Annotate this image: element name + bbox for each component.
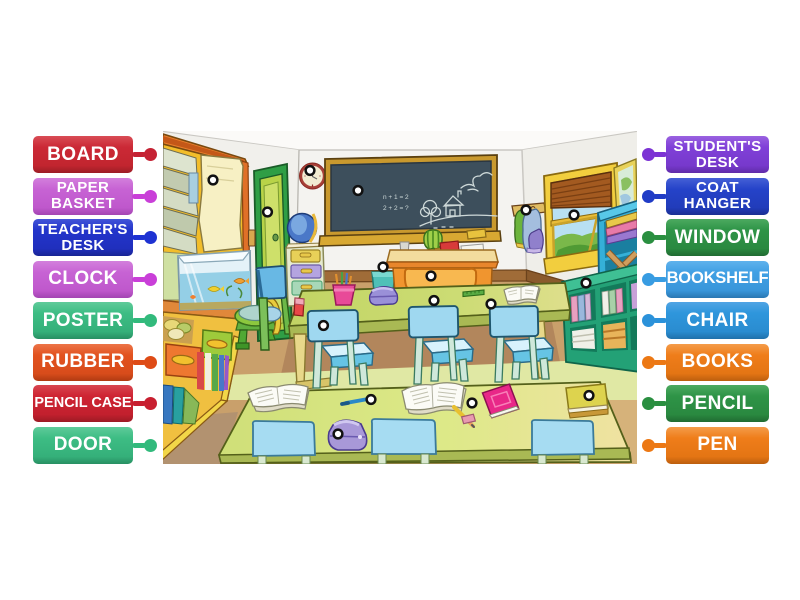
svg-text:n + 1 = 2: n + 1 = 2: [383, 194, 409, 201]
svg-text:2 + 2 = ?: 2 + 2 = ?: [383, 205, 409, 212]
